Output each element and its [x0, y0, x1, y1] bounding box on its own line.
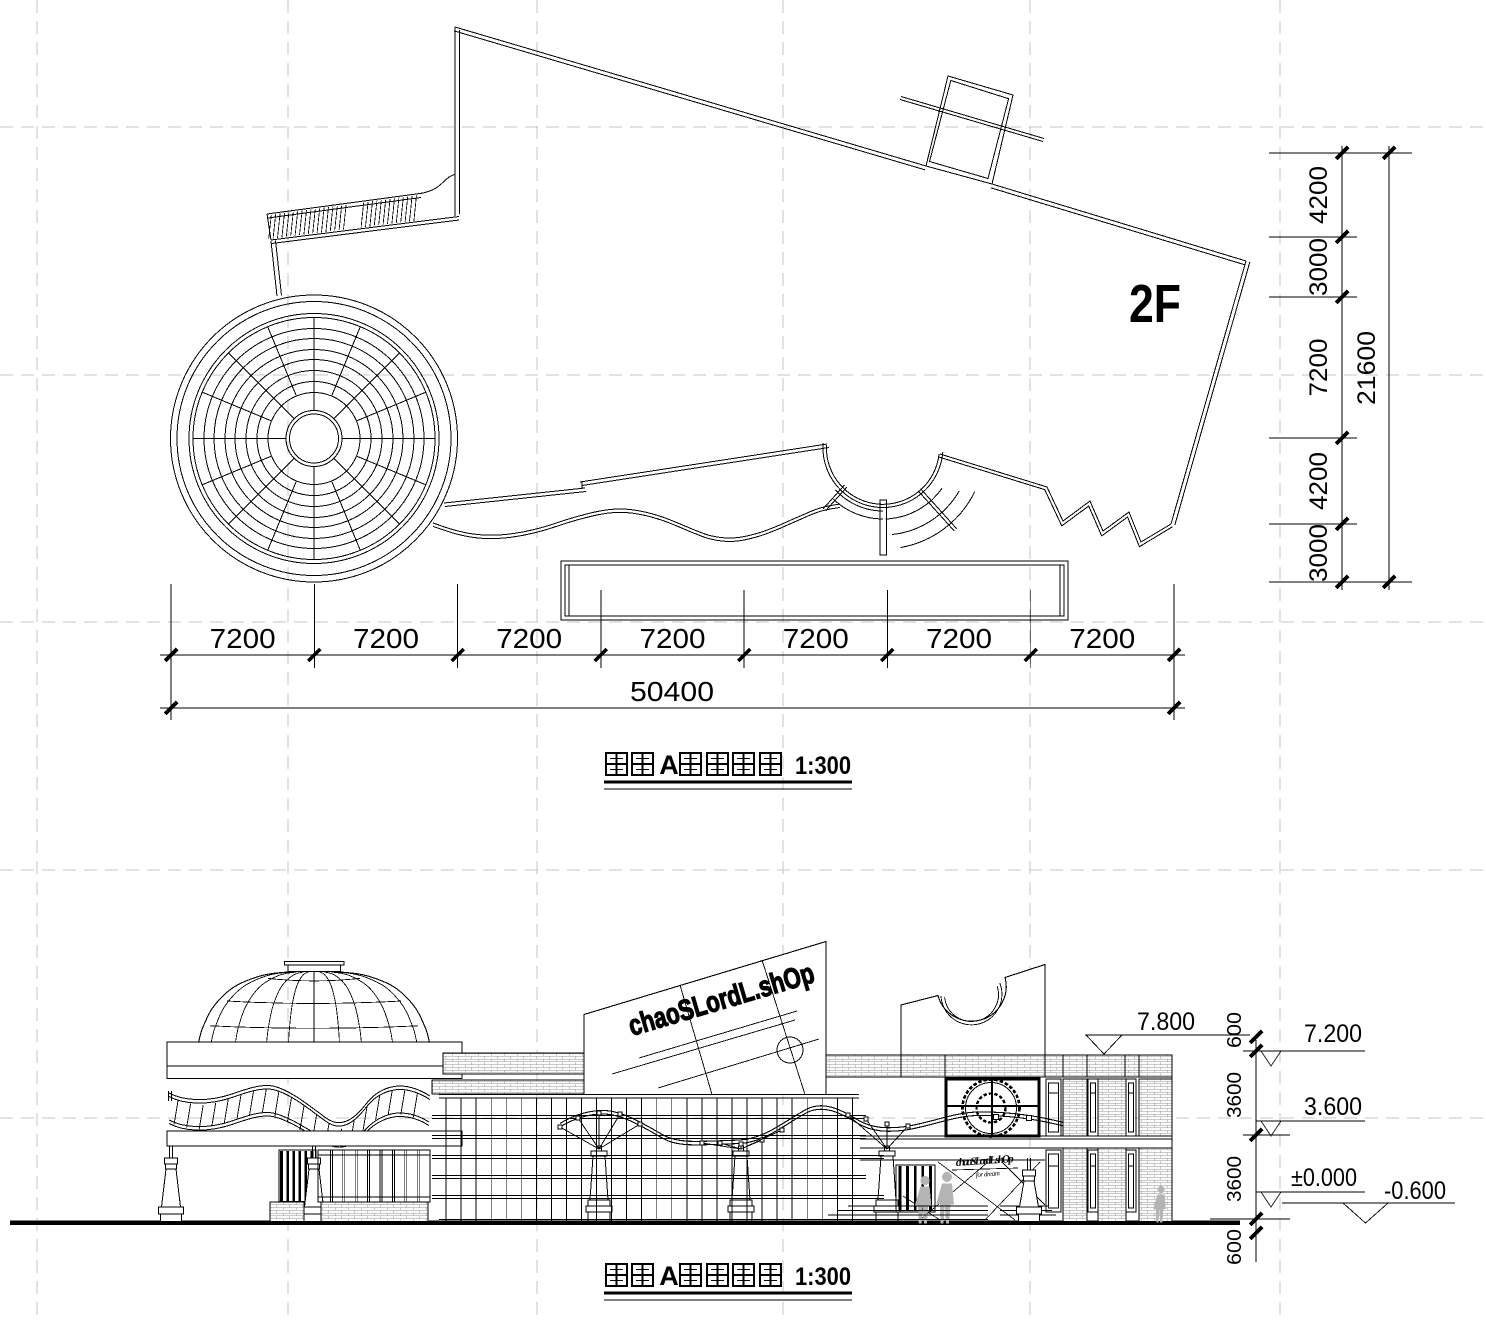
svg-text:±0.000: ±0.000	[1291, 1164, 1357, 1192]
svg-text:7200: 7200	[1305, 339, 1333, 397]
svg-text:4200: 4200	[1305, 452, 1333, 510]
svg-text:7.200: 7.200	[1304, 1020, 1362, 1048]
svg-text:7200: 7200	[496, 623, 562, 654]
svg-text:for dream: for dream	[976, 1169, 1000, 1179]
svg-text:600: 600	[1224, 1229, 1246, 1265]
svg-text:7200: 7200	[783, 623, 849, 654]
svg-text:3000: 3000	[1305, 238, 1333, 296]
svg-text:3600: 3600	[1224, 1072, 1246, 1118]
svg-text:7200: 7200	[926, 623, 992, 654]
svg-text:1:300: 1:300	[795, 752, 851, 780]
svg-text:7200: 7200	[1069, 623, 1135, 654]
svg-text:A: A	[659, 1261, 679, 1291]
svg-text:50400: 50400	[630, 676, 714, 707]
svg-text:A: A	[659, 750, 679, 780]
svg-text:7200: 7200	[210, 623, 276, 654]
svg-text:600: 600	[1224, 1012, 1246, 1048]
svg-text:7200: 7200	[353, 623, 419, 654]
svg-text:4200: 4200	[1305, 166, 1333, 224]
svg-text:7.800: 7.800	[1137, 1008, 1195, 1036]
svg-text:3600: 3600	[1224, 1156, 1246, 1202]
svg-text:3.600: 3.600	[1304, 1093, 1362, 1121]
svg-text:1:300: 1:300	[795, 1263, 851, 1291]
svg-text:7200: 7200	[640, 623, 706, 654]
svg-text:3000: 3000	[1305, 524, 1333, 582]
svg-text:21600: 21600	[1353, 331, 1381, 405]
svg-text:2F: 2F	[1129, 274, 1181, 334]
svg-text:-0.600: -0.600	[1384, 1177, 1446, 1205]
